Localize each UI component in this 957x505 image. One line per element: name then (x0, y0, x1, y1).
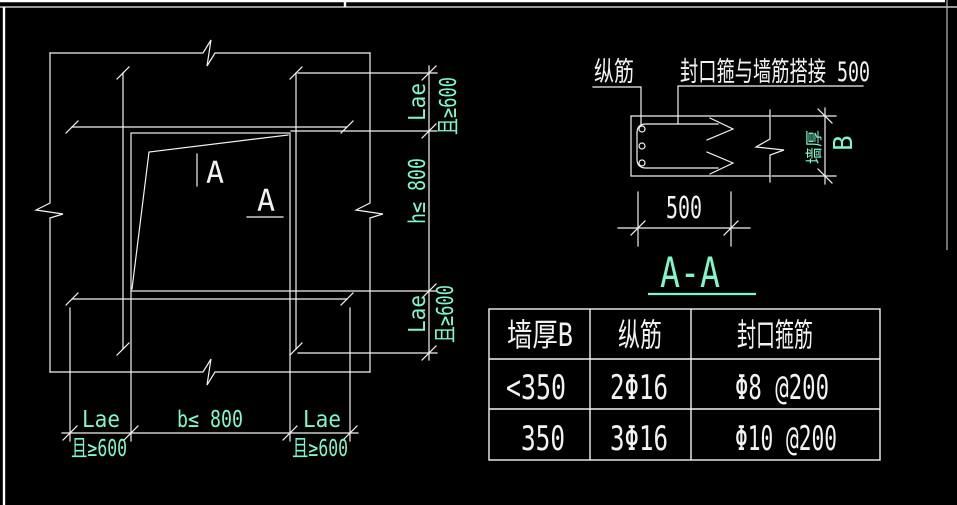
table-header-closing-stirrup: 封口箍筋 (737, 316, 813, 354)
dim-label-ge600-left: 且≥600 (71, 436, 127, 462)
table-cell: 350 (521, 419, 565, 459)
dim-label-500: 500 (666, 191, 702, 226)
table-cell: <350 (506, 368, 566, 408)
dim-label-lae-left: Lae (82, 407, 120, 433)
dim-label-ge600-right: 且≥600 (292, 436, 348, 462)
label-longitudinal-bar: 纵筋 (594, 57, 634, 88)
cad-viewport: A A Lae 且≥600 h≤ 800 Lae 且≥600 Lae 且≥600… (0, 0, 957, 505)
dim-label-ge600-top: 且≥600 (436, 77, 462, 135)
table-header-longitudinal: 纵筋 (618, 316, 662, 354)
table-cell: 3Φ16 (610, 419, 668, 459)
table-cell: Φ8 @200 (735, 368, 829, 408)
cad-drawing-canvas: A A Lae 且≥600 h≤ 800 Lae 且≥600 Lae 且≥600… (0, 0, 957, 505)
section-mark-a2: A (257, 184, 275, 219)
section-mark-a1: A (206, 156, 224, 191)
section-title-text: A-A (660, 248, 720, 297)
dim-label-lae-bottom: Lae (405, 295, 431, 333)
table-cell: Φ10 @200 (735, 419, 837, 459)
dim-label-lae-right: Lae (303, 407, 341, 433)
table-cell: 2Φ16 (610, 368, 668, 408)
dim-label-width: b≤ 800 (177, 407, 243, 433)
dim-label-lae-top: Lae (405, 83, 431, 121)
dim-label-ge600-bottom: 且≥600 (433, 285, 459, 343)
table-header-wall-thickness: 墙厚B (507, 316, 573, 354)
dim-label-height: h≤ 800 (405, 158, 431, 224)
label-closing-stirrup-lap: 封口箍与墙筋搭接 500 (680, 57, 870, 88)
dim-label-wall-thickness-b: B (829, 135, 859, 151)
dim-label-wall-thickness: 墙厚 (805, 130, 825, 164)
